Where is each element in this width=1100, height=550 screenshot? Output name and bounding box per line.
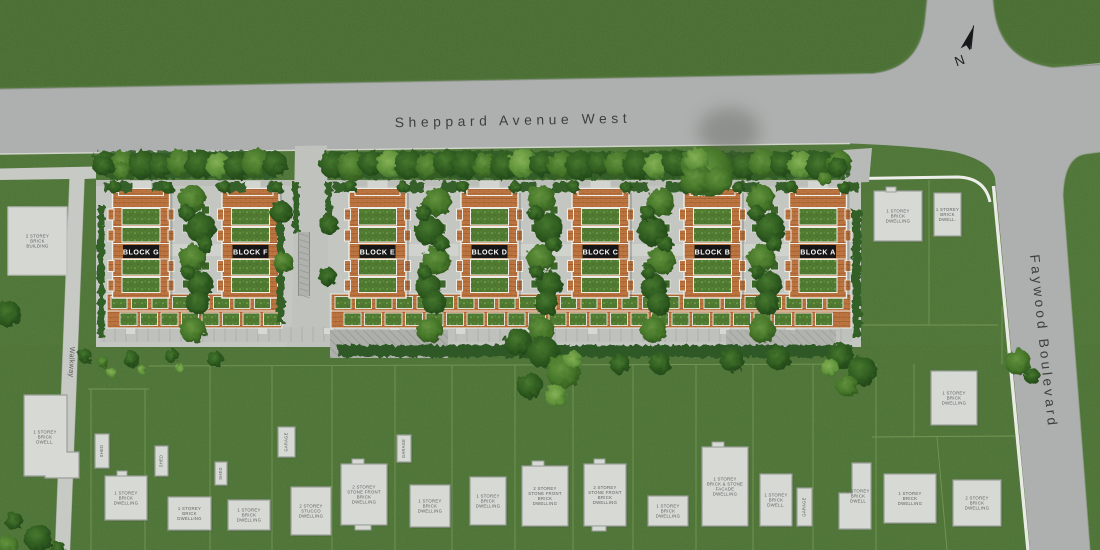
svg-text:Walkway: Walkway	[67, 347, 77, 378]
svg-text:BLOCK A: BLOCK A	[800, 248, 836, 256]
svg-text:SHED: SHED	[218, 467, 223, 480]
svg-text:BLOCK D: BLOCK D	[472, 248, 508, 256]
svg-text:2 STOREYSTUCCODWELLING: 2 STOREYSTUCCODWELLING	[299, 504, 324, 519]
svg-text:BLOCK E: BLOCK E	[360, 248, 395, 256]
svg-text:SHED: SHED	[99, 445, 104, 458]
svg-text:GARAGE: GARAGE	[802, 497, 807, 516]
svg-text:GARAGE: GARAGE	[401, 439, 406, 458]
svg-text:BLOCK F: BLOCK F	[233, 248, 268, 256]
svg-text:GARAGE: GARAGE	[284, 432, 289, 451]
svg-text:BLOCK C: BLOCK C	[583, 248, 619, 256]
svg-text:SHED: SHED	[159, 455, 164, 468]
svg-text:BLOCK G: BLOCK G	[123, 248, 159, 256]
svg-text:BLOCK B: BLOCK B	[695, 248, 731, 256]
